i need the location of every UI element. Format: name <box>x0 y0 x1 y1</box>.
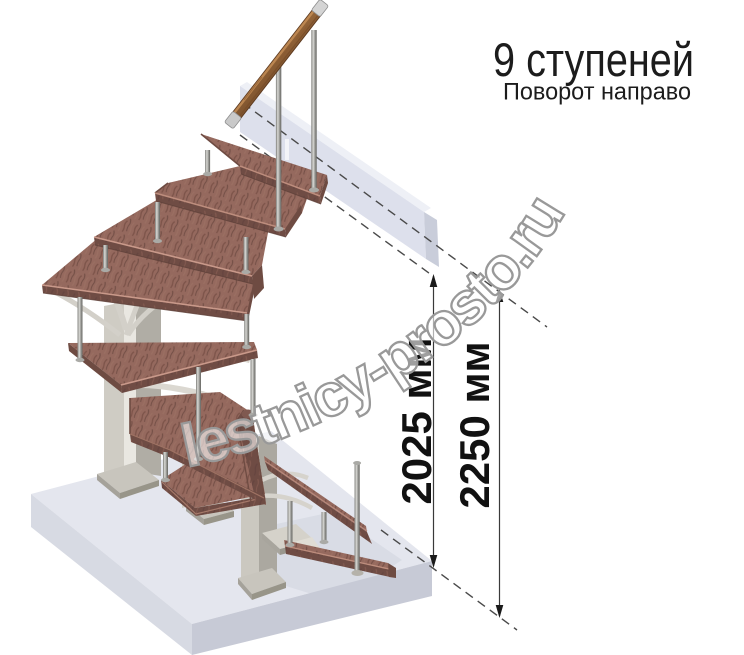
svg-text:2250 мм: 2250 мм <box>451 341 498 508</box>
svg-text:Поворот направо: Поворот направо <box>503 79 691 106</box>
